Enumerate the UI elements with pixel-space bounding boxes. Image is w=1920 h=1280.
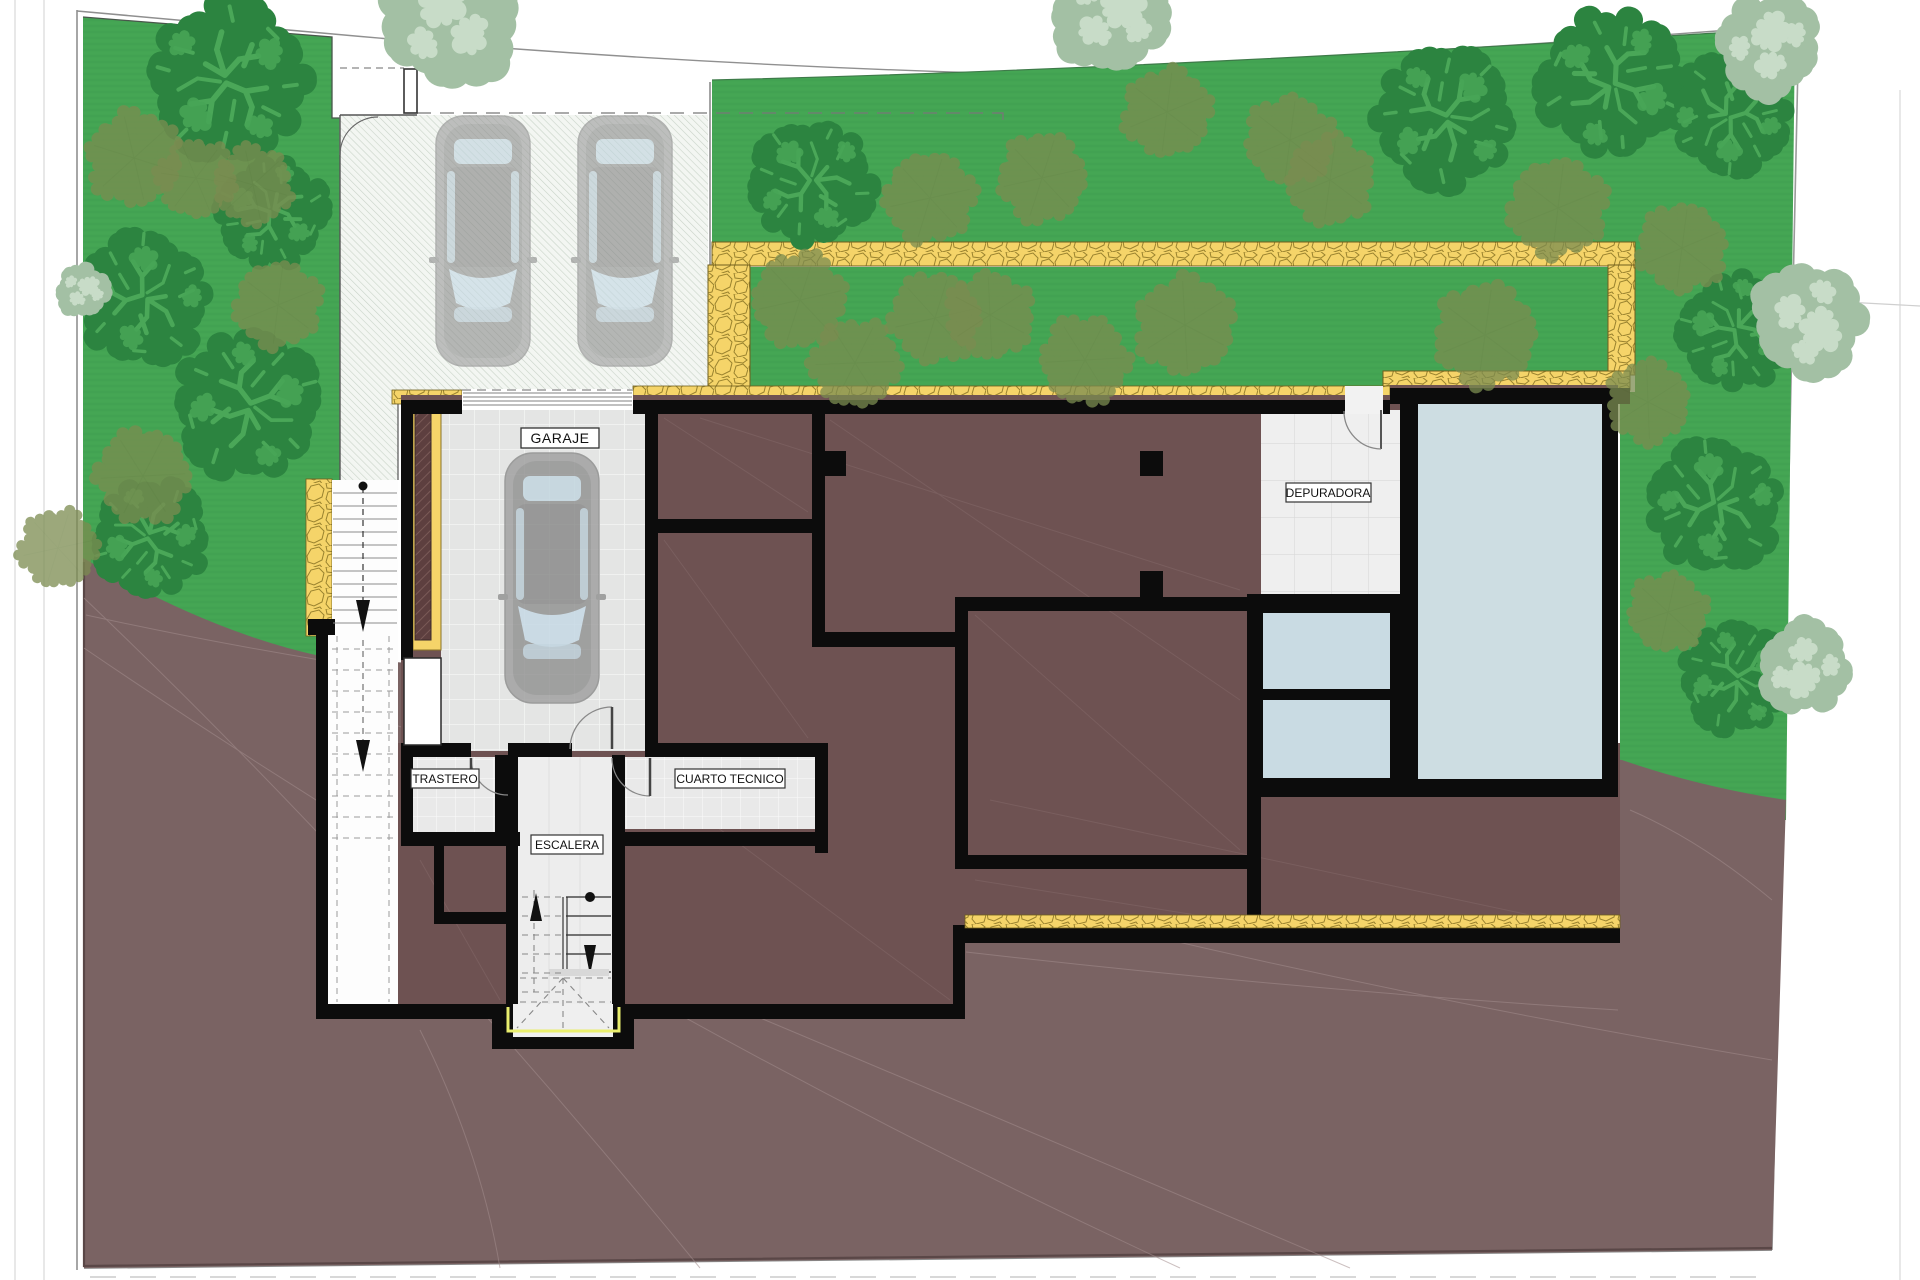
- svg-text:CUARTO TECNICO: CUARTO TECNICO: [676, 772, 783, 786]
- svg-text:ESCALERA: ESCALERA: [535, 838, 599, 852]
- svg-text:DEPURADORA: DEPURADORA: [1286, 486, 1371, 500]
- svg-text:TRASTERO: TRASTERO: [412, 772, 477, 786]
- svg-text:GARAJE: GARAJE: [530, 430, 589, 446]
